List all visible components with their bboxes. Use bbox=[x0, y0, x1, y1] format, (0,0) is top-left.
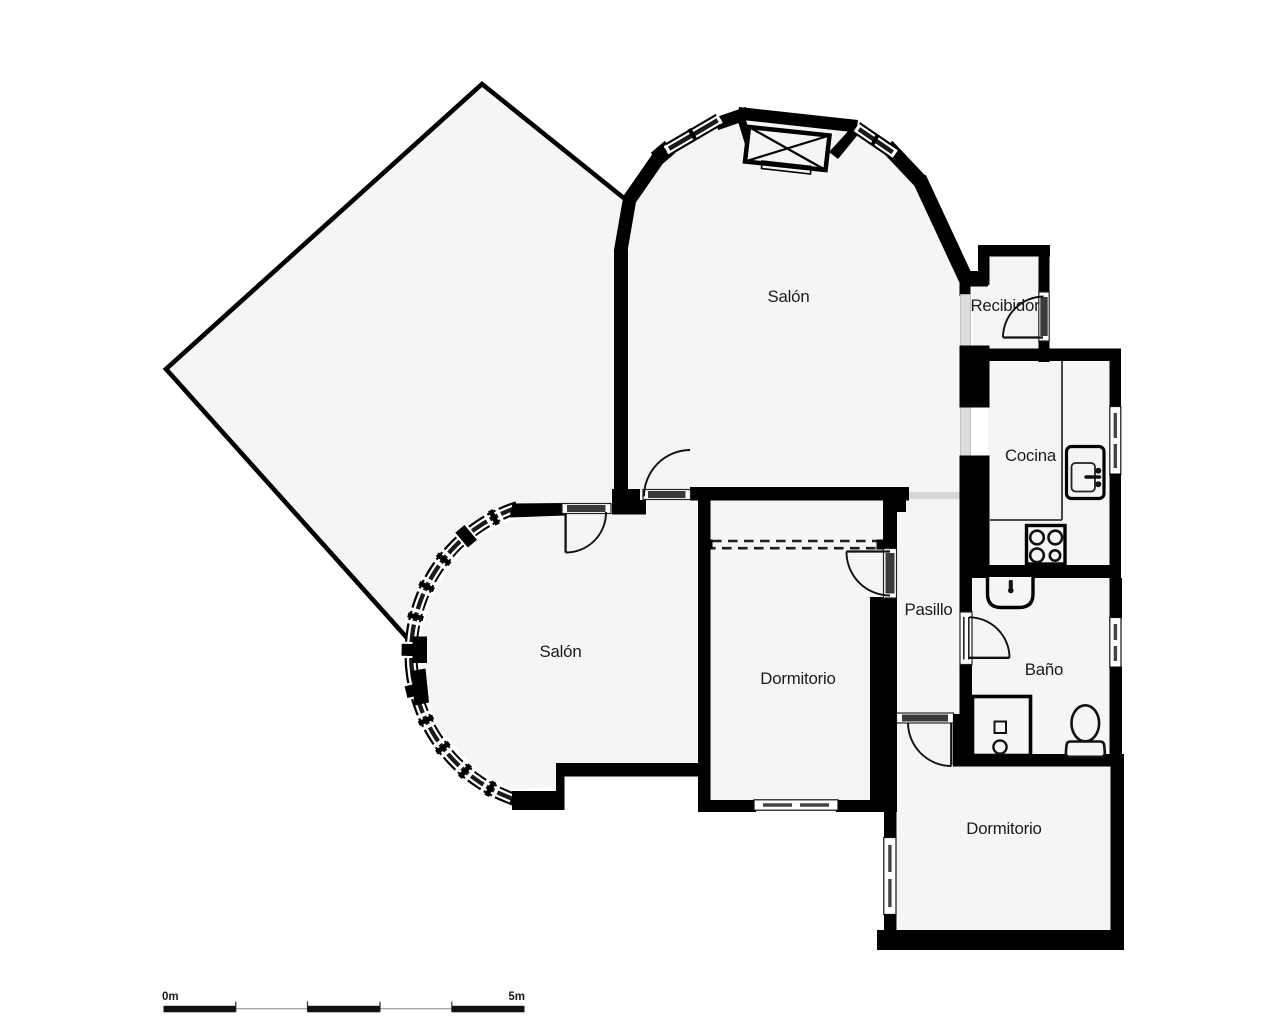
svg-text:Salón: Salón bbox=[540, 642, 582, 661]
svg-text:5m: 5m bbox=[508, 991, 525, 1003]
svg-text:Salón: Salón bbox=[768, 287, 810, 306]
svg-text:0m: 0m bbox=[162, 991, 179, 1003]
svg-text:Cocina: Cocina bbox=[1005, 446, 1057, 465]
svg-text:Recibidor: Recibidor bbox=[970, 296, 1040, 315]
svg-text:Dormitorio: Dormitorio bbox=[760, 669, 835, 688]
svg-text:Dormitorio: Dormitorio bbox=[966, 819, 1041, 838]
svg-text:Baño: Baño bbox=[1025, 660, 1063, 679]
svg-text:Pasillo: Pasillo bbox=[904, 600, 952, 619]
